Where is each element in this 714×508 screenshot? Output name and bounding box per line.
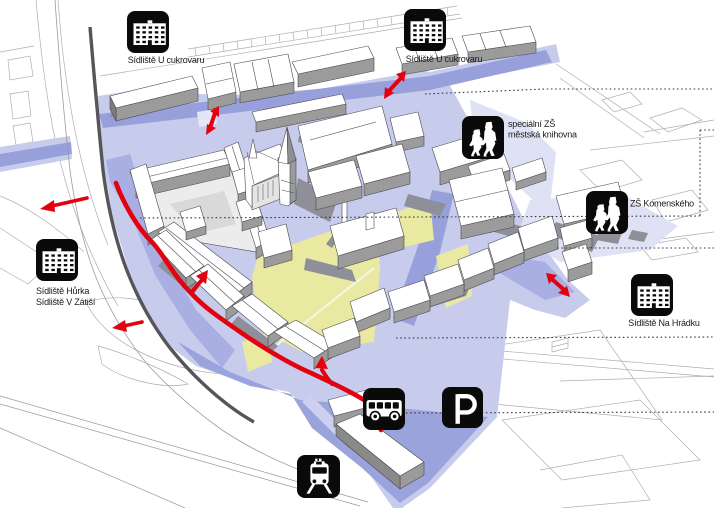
svg-text:městská knihovna: městská knihovna <box>508 130 577 140</box>
svg-text:ZŠ Komenského: ZŠ Komenského <box>630 199 694 209</box>
svg-text:Sídliště V Zátiší: Sídliště V Zátiší <box>36 297 96 307</box>
svg-text:speciální ZŠ: speciální ZŠ <box>508 119 555 129</box>
svg-text:Sídliště U cukrovaru: Sídliště U cukrovaru <box>406 54 483 64</box>
svg-text:Sídliště Hůrka: Sídliště Hůrka <box>36 286 89 296</box>
svg-text:Sídliště Na Hrádku: Sídliště Na Hrádku <box>628 318 700 328</box>
svg-text:Sídliště U cukrovaru: Sídliště U cukrovaru <box>128 55 205 65</box>
